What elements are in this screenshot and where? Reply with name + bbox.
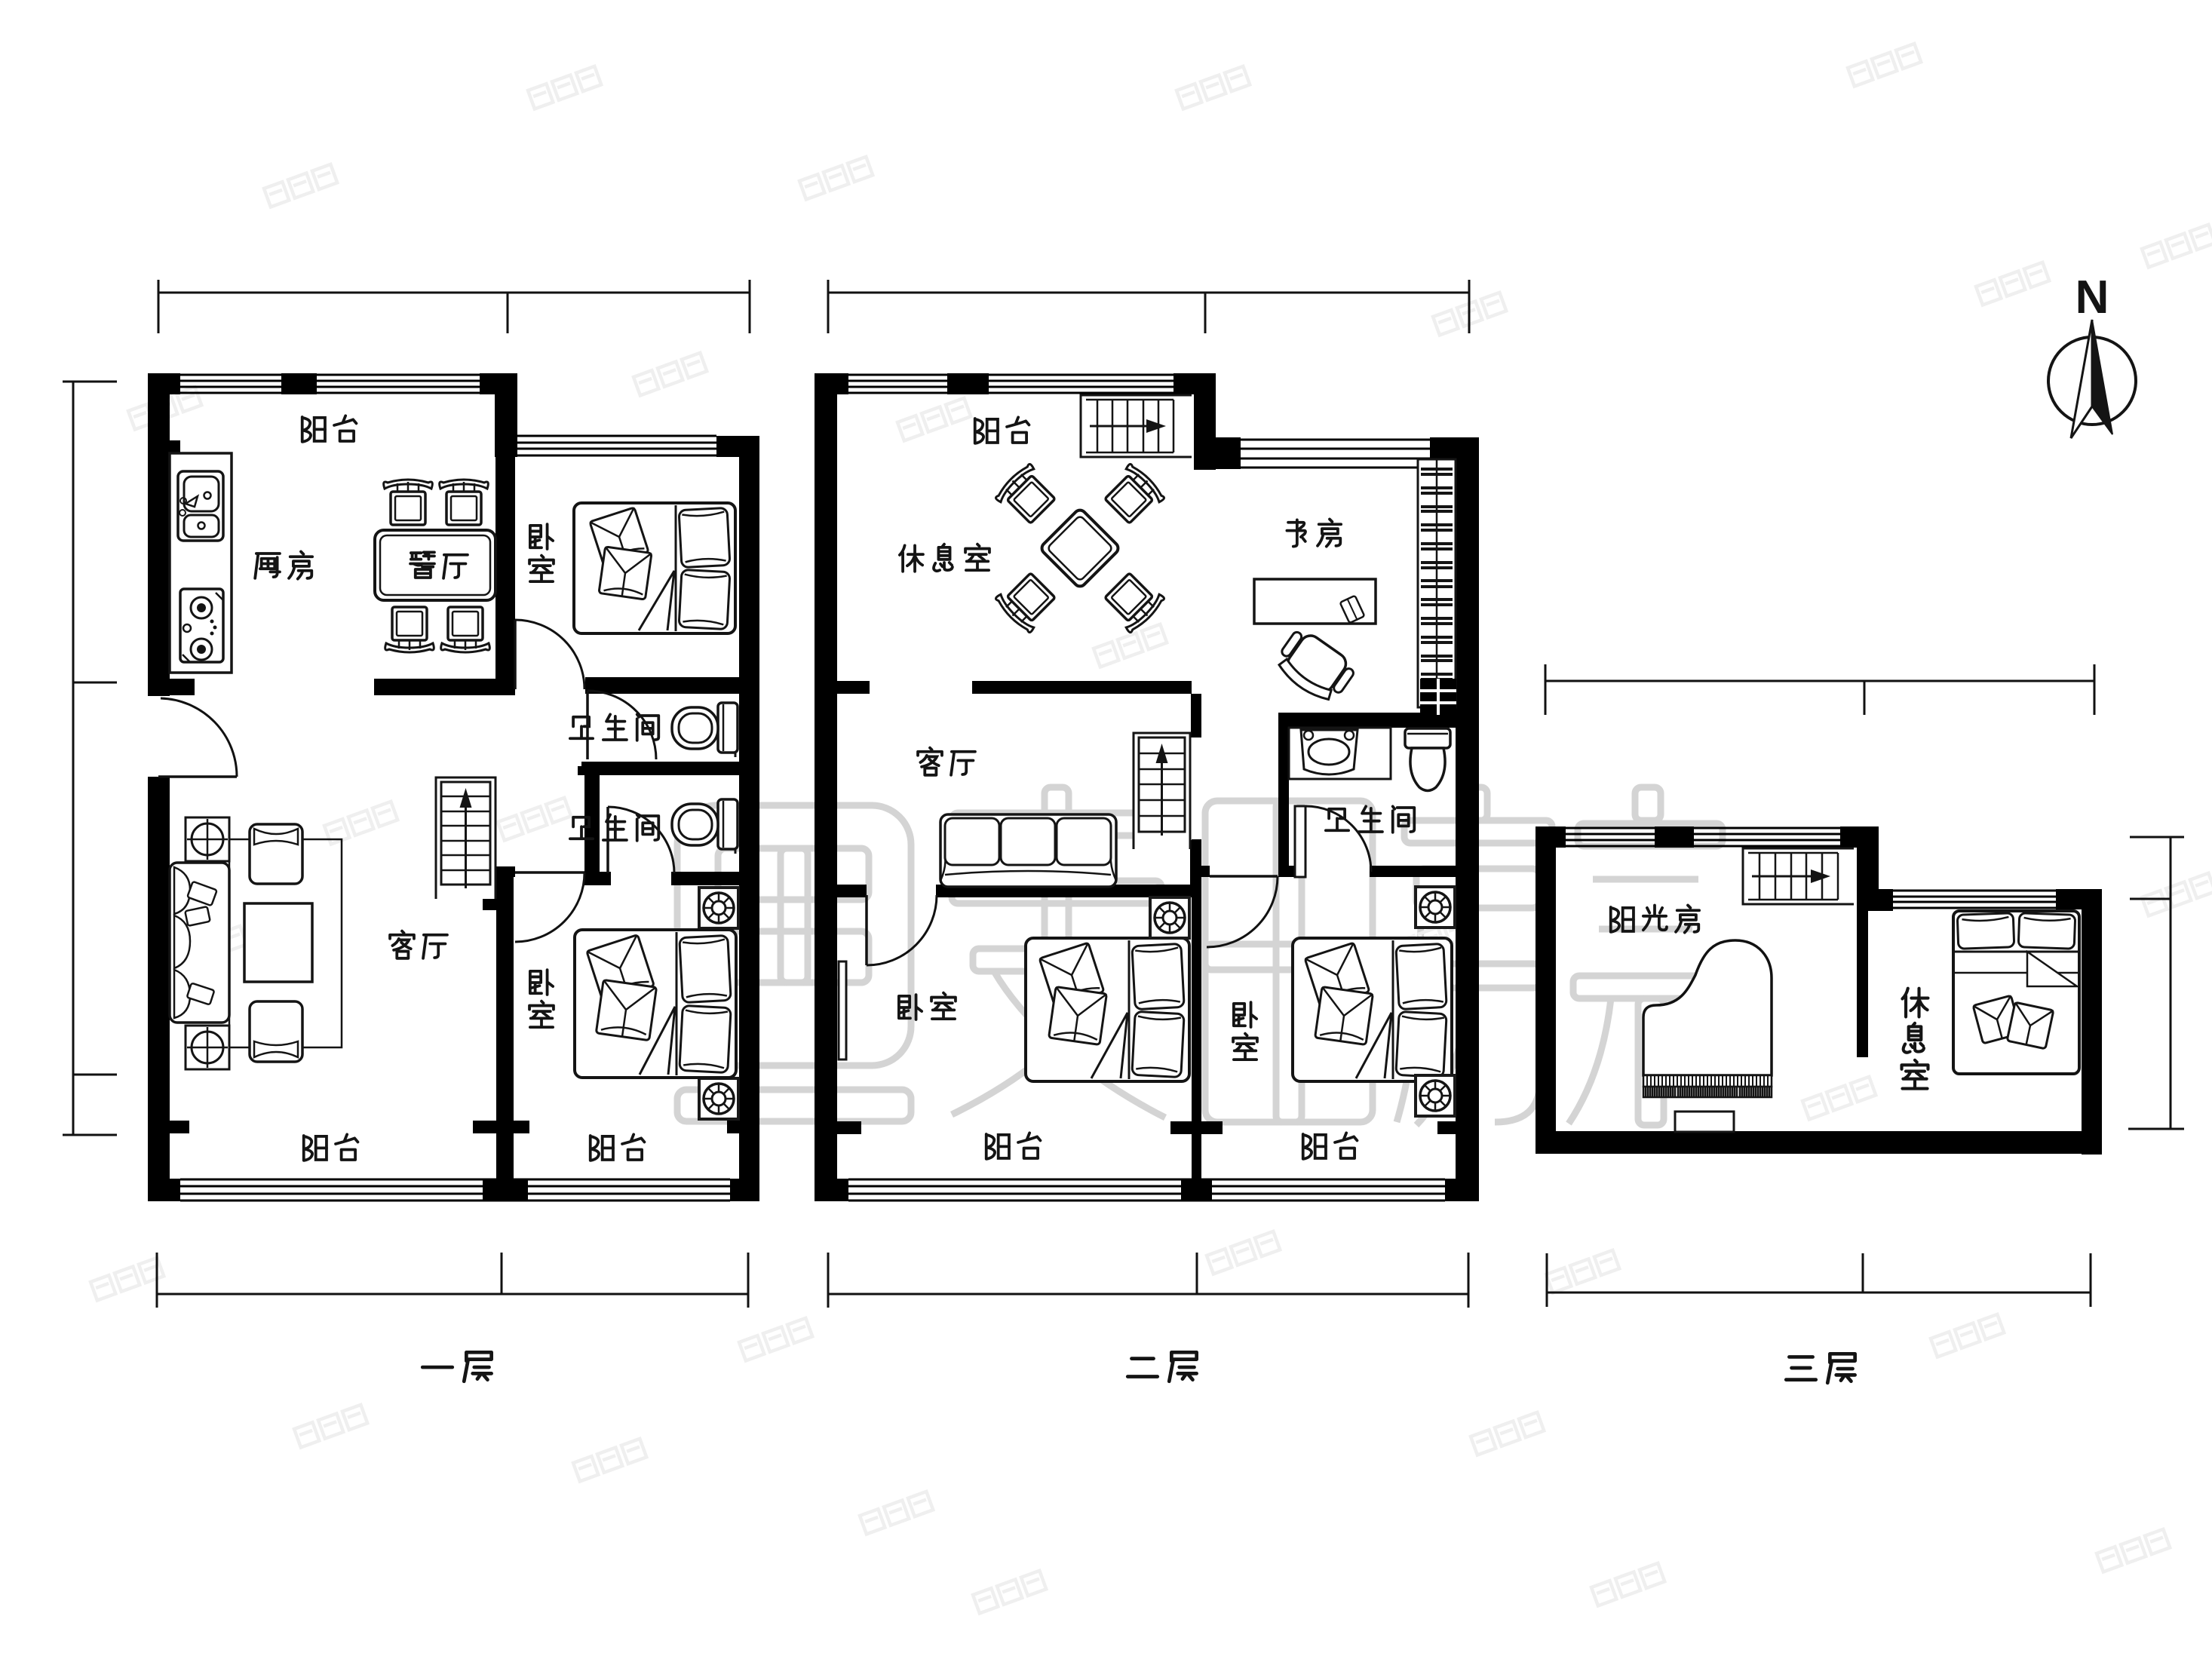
svg-text:N: N (2075, 271, 2109, 324)
